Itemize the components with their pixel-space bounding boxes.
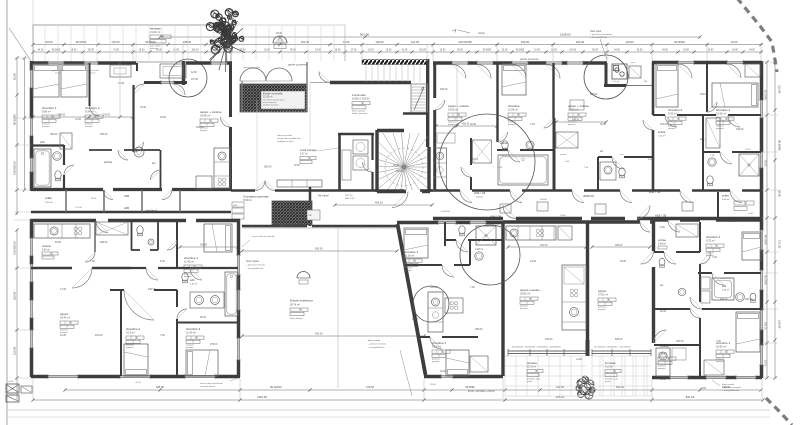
svg-text:304.00: 304.00 [745,298,753,301]
svg-text:212.00: 212.00 [778,85,782,94]
svg-text:+0.00: +0.00 [748,213,754,215]
svg-text:27.06 m²: 27.06 m² [598,293,608,297]
svg-text:chambre 2: chambre 2 [85,106,100,110]
svg-text:90.0090: 90.0090 [52,49,61,51]
svg-text:16.00: 16.00 [708,49,714,51]
svg-text:90.00/90: 90.00/90 [778,140,782,151]
svg-text:béton balayé: béton balayé [290,317,303,320]
svg-text:134.00: 134.00 [103,115,111,117]
svg-text:260.00: 260.00 [475,328,483,331]
svg-text:134.00: 134.00 [625,40,634,44]
svg-text:26.00: 26.00 [637,49,643,51]
svg-text:7.01 m²: 7.01 m² [658,135,666,138]
svg-text:271.00: 271.00 [778,240,782,249]
svg-text:+ anti-graffiti lostit: + anti-graffiti lostit [722,389,740,392]
svg-text:10.29 m²: 10.29 m² [404,254,414,258]
svg-text:234.00: 234.00 [736,128,744,131]
svg-text:+ peinture minérale: + peinture minérale [722,386,742,389]
svg-text:partie couverte: partie couverte [288,63,307,67]
svg-text:466.00: 466.00 [375,202,383,205]
svg-text:460.00: 460.00 [462,124,470,126]
svg-text:160.00: 160.00 [521,40,530,44]
svg-text:12.00: 12.00 [294,165,300,167]
svg-text:7.00: 7.00 [712,256,717,259]
svg-text:séjour + cuisine: séjour + cuisine [200,110,222,114]
svg-text:parquet: parquet [85,125,93,128]
svg-text:15.00: 15.00 [764,360,767,367]
svg-text:16.00: 16.00 [335,49,341,51]
svg-text:HSP 2.50: HSP 2.50 [345,198,355,200]
svg-text:1110.00: 1110.00 [257,395,267,399]
svg-text:391.00: 391.00 [196,126,204,129]
svg-text:cellier: cellier [722,194,729,198]
svg-text:94.00: 94.00 [662,49,668,51]
svg-text:104.00: 104.00 [191,49,199,51]
svg-text:sdb: sdb [722,284,727,288]
svg-text:parquet: parquet [598,308,606,311]
svg-text:91.00: 91.00 [13,73,17,80]
svg-text:7.00: 7.00 [530,123,535,126]
svg-text:60.00: 60.00 [660,310,667,313]
svg-text:23.80 m²: 23.80 m² [448,108,458,112]
svg-text:séjour+cuisine: séjour+cuisine [520,288,540,292]
svg-text:90.00/90: 90.00/90 [674,40,685,44]
svg-text:240.00: 240.00 [148,288,156,291]
svg-text:+6.00: +6.00 [8,381,14,383]
svg-text:parquet: parquet [568,123,576,126]
svg-text:Terrasse: Terrasse [605,361,616,365]
svg-text:41.00: 41.00 [402,49,408,51]
svg-text:390.00: 390.00 [50,133,58,136]
svg-text:6.40 m²: 6.40 m² [722,198,730,201]
svg-text:90.0090: 90.0090 [465,385,475,389]
svg-text:33.00: 33.00 [683,49,689,51]
svg-text:9.32 m²: 9.32 m² [668,112,677,116]
svg-text:945.00: 945.00 [156,385,164,389]
svg-text:Circulation générale: Circulation générale [243,195,269,199]
svg-text:7.02 m²: 7.02 m² [658,352,667,356]
svg-text:+ anti-graffiti lostit: + anti-graffiti lostit [590,36,608,39]
svg-text:134.00: 134.00 [44,40,53,44]
svg-text:15.00: 15.00 [440,49,446,51]
svg-text:Local vélo: Local vélo [352,93,366,97]
svg-text:630.00: 630.00 [590,93,598,96]
svg-text:59.74 m²: 59.74 m² [290,304,300,307]
svg-text:90.00/90: 90.00/90 [764,90,767,100]
svg-text:19.00: 19.00 [430,384,436,386]
svg-text:48.00: 48.00 [276,32,283,35]
svg-text:séjour: séjour [60,312,68,316]
svg-text:+ anti-graffiti lostit: + anti-graffiti lostit [368,346,385,349]
svg-text:11.45 m²: 11.45 m² [184,260,194,264]
svg-text:141.00: 141.00 [411,40,420,44]
svg-text:34.50: 34.50 [764,160,767,167]
svg-text:65.00: 65.00 [412,318,419,321]
svg-text:249.00: 249.00 [58,115,66,117]
svg-text:Local ménage: Local ménage [300,148,317,152]
svg-text:90.00/90: 90.00/90 [764,275,767,285]
svg-text:90.0090: 90.0090 [516,49,525,51]
svg-text:80.0090: 80.0090 [483,49,492,51]
svg-text:7.26 m²: 7.26 m² [500,154,508,157]
svg-text:A06: A06 [124,206,130,210]
svg-text:parquet: parquet [658,367,666,370]
svg-text:entrée: entrée [104,160,113,164]
svg-text:29.48 m²: 29.48 m² [200,114,210,118]
svg-text:béton rapide: béton rapide [368,339,381,342]
svg-text:44.00: 44.00 [38,49,44,51]
svg-text:12.00: 12.00 [118,82,125,85]
svg-text:35.80 m²: 35.80 m² [243,199,252,202]
svg-text:+ anti-graffiti lostit: + anti-graffiti lostit [246,267,264,270]
svg-text:2.28 m²: 2.28 m² [475,248,483,251]
svg-text:140.00/210: 140.00/210 [13,161,17,175]
svg-text:525.00: 525.00 [615,338,623,341]
svg-text:2.47 m²: 2.47 m² [300,153,308,156]
svg-text:90.00: 90.00 [200,316,207,319]
svg-text:parquet: parquet [448,123,456,126]
svg-text:12.05 m²: 12.05 m² [263,96,273,99]
svg-text:9.13 m²: 9.13 m² [126,331,135,335]
svg-text:134.00: 134.00 [569,49,577,51]
svg-text:cuisine: cuisine [42,244,51,248]
svg-text:276.50: 276.50 [366,385,374,389]
svg-text:parquet: parquet [126,346,134,349]
svg-text:7.00: 7.00 [90,260,95,263]
svg-text:pente: pente [527,380,533,383]
svg-text:7.00: 7.00 [470,286,475,289]
svg-text:parquet: parquet [716,360,724,363]
svg-text:terrasse: terrasse [527,361,538,365]
svg-text:HSP: HSP [233,205,238,207]
svg-text:max: max [631,62,635,64]
svg-text:205.00: 205.00 [100,133,108,136]
svg-text:10 cm: 10 cm [55,73,61,75]
svg-text:180.00: 180.00 [764,322,767,330]
svg-text:chambre 3: chambre 3 [186,327,201,331]
svg-text:terrasse: terrasse [150,27,161,31]
svg-text:chambre 2: chambre 2 [432,341,447,345]
svg-text:2.28 m²: 2.28 m² [470,158,478,161]
svg-text:A05: A05 [124,194,130,198]
svg-text:233.00: 233.00 [676,340,684,343]
svg-text:10.65 m²: 10.65 m² [716,345,726,349]
svg-text:(PMR dV): (PMR dV) [583,194,595,198]
svg-text:9.13 m²: 9.13 m² [432,345,441,349]
svg-text:auvent poste tiboi: auvent poste tiboi [243,66,261,69]
svg-text:44.00: 44.00 [614,49,620,51]
svg-text:chambre 1: chambre 1 [42,106,57,110]
svg-text:9.00: 9.00 [660,226,665,229]
svg-text:16.00: 16.00 [393,165,399,167]
svg-text:ensuite dans meuble bois: ensuite dans meuble bois [277,137,301,140]
svg-text:17.00: 17.00 [60,288,67,291]
svg-text:chambre 1: chambre 1 [716,108,731,112]
svg-text:wc: wc [152,161,156,165]
svg-text:entrée: entrée [500,141,508,145]
svg-text:401.00: 401.00 [660,123,668,126]
svg-text:pente: pente [605,380,611,383]
svg-text:8.96 m²: 8.96 m² [42,110,51,114]
svg-text:parquet: parquet [186,346,194,349]
svg-text:9.32 m²: 9.32 m² [706,239,715,243]
svg-text:910.00: 910.00 [315,333,323,336]
svg-text:104.00: 104.00 [375,40,384,44]
svg-text:sdb: sdb [190,278,195,282]
svg-text:soufflage en relief: soufflage en relief [277,140,294,143]
svg-text:90.00/210: 90.00/210 [270,385,282,389]
svg-text:170.00: 170.00 [111,40,120,44]
svg-text:210.00/210: 210.00/210 [13,241,17,255]
svg-text:408.30: 408.30 [720,298,728,301]
svg-text:3.30 m²: 3.30 m² [45,201,53,204]
svg-text:11.40 m²: 11.40 m² [186,331,196,335]
svg-text:100.00: 100.00 [476,197,483,199]
svg-text:130.00: 130.00 [778,320,782,329]
svg-text:80.00/90: 80.00/90 [764,235,767,245]
svg-text:pluie rapid: pluie rapid [590,30,602,33]
svg-text:21.00 m²: 21.00 m² [150,30,160,34]
svg-text:18.00: 18.00 [71,49,77,51]
svg-text:+ peinture minérale: + peinture minérale [368,343,387,346]
svg-text:cellier: cellier [45,196,52,200]
svg-text:chambre 1: chambre 1 [184,256,199,260]
svg-text:10 cm: 10 cm [90,73,96,75]
svg-text:18.95 m² 105.00: 18.95 m² 105.00 [352,98,370,101]
svg-text:58.00: 58.00 [778,190,782,197]
svg-text:cuisine: cuisine [660,344,669,348]
svg-text:verre satiné translucide: verre satiné translucide [252,235,275,238]
svg-text:séjour + cuisine: séjour + cuisine [448,104,469,108]
svg-text:1159.00: 1159.00 [560,33,571,37]
svg-text:202.00: 202.00 [576,40,585,44]
svg-text:630.00: 630.00 [315,248,323,251]
svg-text:400.00: 400.00 [440,88,448,91]
svg-text:90.00: 90.00 [592,49,598,51]
svg-text:841.00: 841.00 [686,395,695,399]
svg-text:15.76 m²: 15.76 m² [527,366,536,369]
svg-text:béton rapide: béton rapide [246,260,259,263]
svg-text:276.00: 276.00 [210,343,218,346]
svg-text:117.00/210 + 90.00/210 + 117.0: 117.00/210 + 90.00/210 + 117.00/210 [594,347,631,349]
svg-text:séjour: séjour [598,289,606,293]
svg-text:110.00/210 + 90.00/210 + 90.00: 110.00/210 + 90.00/210 + 90.00/210 + 110… [512,347,561,349]
svg-text:15.00: 15.00 [386,49,392,51]
svg-text:90.00 + 90.0090 + 230.00: 90.00 + 90.0090 + 230.00 [468,391,495,393]
svg-text:parquet: parquet [404,269,412,272]
svg-text:Air Neuf: Air Neuf [318,194,329,198]
svg-text:parquet: parquet [42,125,50,128]
svg-text:parquet: parquet [716,127,724,130]
svg-text:Entrée extérieure: Entrée extérieure [290,299,313,303]
svg-text:-75.00: -75.00 [90,198,97,200]
svg-text:15.00: 15.00 [502,49,508,51]
svg-text:21.00: 21.00 [551,49,557,51]
svg-text:26/7.00: 26/7.00 [345,195,353,197]
svg-text:29.90 m²: 29.90 m² [520,292,530,296]
svg-text:434.00: 434.00 [545,338,553,341]
svg-text:5.00: 5.00 [160,260,165,263]
svg-text:23.00: 23.00 [264,49,270,51]
svg-text:12.00: 12.00 [191,72,197,74]
svg-text:12.00: 12.00 [75,118,82,121]
svg-text:parquet: parquet [508,123,516,126]
svg-text:74.00: 74.00 [113,49,119,51]
svg-text:421.00: 421.00 [301,40,310,44]
svg-text:16.00: 16.00 [140,106,147,109]
svg-text:+ peinture minérale: + peinture minérale [246,264,266,267]
svg-text:+0.00/210: +0.00/210 [440,211,451,213]
svg-text:19.00: 19.00 [139,49,145,51]
svg-text:325.00: 325.00 [615,244,623,247]
svg-text:901.00: 901.00 [360,33,370,37]
svg-text:82.00: 82.00 [457,49,463,51]
svg-text:80.00/90: 80.00/90 [13,114,17,125]
svg-text:25.00: 25.00 [620,260,627,263]
svg-text:90.00: 90.00 [88,49,94,51]
svg-text:14.00: 14.00 [530,260,537,263]
svg-text:parquet: parquet [668,127,676,130]
svg-text:entrée: entrée [560,153,567,156]
svg-text:cloche: cloche [478,32,486,35]
svg-text:plafond: peinture: plafond: peinture [263,104,279,107]
svg-text:+10.00: +10.00 [75,207,83,209]
svg-text:C.U. po: C.U. po [612,81,620,83]
svg-text:140.00: 140.00 [540,199,547,201]
svg-text:entrée: entrée [658,130,666,134]
svg-text:+6.00: +6.00 [135,382,141,384]
svg-text:7.00: 7.00 [160,334,165,337]
svg-text:+ perchoirs hirondelles: + perchoirs hirondelles [590,33,613,36]
svg-text:19.00: 19.00 [440,370,447,373]
svg-text:sdb: sdb [40,140,45,144]
svg-text:304.00: 304.00 [264,166,272,169]
svg-text:18.00: 18.00 [732,49,738,51]
svg-text:pelouse: pelouse [150,48,158,50]
svg-text:séjour + cuisine: séjour + cuisine [568,104,589,108]
svg-text:+3.60: +3.60 [700,387,707,390]
svg-text:4.10 m²: 4.10 m² [605,366,613,369]
svg-text:parquet: parquet [520,307,528,310]
svg-text:90.00/90: 90.00/90 [76,40,87,44]
svg-text:120.00: 120.00 [13,346,17,355]
svg-text:chambre 2: chambre 2 [668,108,683,112]
svg-text:12.00: 12.00 [60,334,67,337]
svg-text:dallur / peinture: dallur / peinture [352,112,368,115]
svg-text:sdb: sdb [700,137,705,141]
svg-text:16.00: 16.00 [160,116,167,119]
svg-text:partie couverte: partie couverte [520,57,539,61]
svg-text:selbe aux tables: selbe aux tables [277,134,292,137]
svg-text:250.00: 250.00 [13,291,17,300]
svg-text:11.96 m²: 11.96 m² [508,108,518,112]
svg-text:14.00: 14.00 [315,49,321,51]
svg-text:16.00: 16.00 [173,49,179,51]
svg-text:74.00: 74.00 [343,40,350,44]
svg-text:béton rapide: béton rapide [722,383,735,386]
svg-text:34.50: 34.50 [745,149,751,151]
svg-text:4.45 m²: 4.45 m² [722,289,730,292]
svg-text:130.00/100: 130.00/100 [458,40,472,44]
svg-text:Air Neuf: Air Neuf [146,209,157,213]
svg-text:parquet: parquet [200,129,208,132]
svg-text:96.00: 96.00 [290,49,296,51]
svg-text:18.00: 18.00 [368,49,374,51]
svg-text:16.00: 16.00 [534,49,540,51]
svg-text:368.00: 368.00 [100,241,108,244]
svg-text:5.46 m²: 5.46 m² [190,283,198,286]
svg-text:162.00: 162.00 [419,49,427,51]
svg-text:en partie basse: en partie basse [200,385,216,388]
svg-text:44.00: 44.00 [731,40,738,44]
svg-text:20.00: 20.00 [470,123,477,126]
svg-text:23.80 m²: 23.80 m² [568,108,578,112]
svg-text:+0.00: +0.00 [576,359,583,361]
svg-text:10.65 m²: 10.65 m² [716,112,726,116]
svg-text:3.98 m²: 3.98 m² [658,243,666,246]
svg-text:9.34 m²: 9.34 m² [85,110,94,114]
svg-text:18.00: 18.00 [730,220,737,223]
svg-text:verre satiné translucide: verre satiné translucide [200,382,223,385]
svg-text:123.00: 123.00 [430,286,438,289]
svg-text:chambre 2: chambre 2 [706,235,721,239]
svg-text:18.00: 18.00 [660,378,667,381]
svg-text:9.42 m²: 9.42 m² [42,249,50,252]
svg-text:39.40 m²: 39.40 m² [60,316,70,320]
svg-text:Vitrine 90x 9: Vitrine 90x 9 [720,277,732,280]
svg-text:parquet: parquet [432,360,440,363]
svg-text:chambre 1: chambre 1 [404,250,419,254]
svg-text:30.00: 30.00 [600,123,607,126]
svg-text:chambre 2: chambre 2 [126,327,141,331]
svg-text:chambre: chambre [508,104,520,108]
svg-text:7.00: 7.00 [716,340,721,343]
svg-text:58.00: 58.00 [648,159,654,161]
svg-text:107.50: 107.50 [191,79,199,81]
svg-text:208.00: 208.00 [183,40,192,44]
svg-text:17.00: 17.00 [351,49,357,51]
svg-text:401.00: 401.00 [95,334,103,337]
svg-text:94.00: 94.00 [55,241,62,244]
svg-text:434.00: 434.00 [540,244,548,247]
svg-text:44.00: 44.00 [749,49,755,51]
svg-text:491.00: 491.00 [700,93,708,96]
svg-text:entrée: entrée [658,238,666,242]
svg-text:14.00: 14.00 [560,215,566,217]
svg-text:160.00: 160.00 [396,171,404,173]
